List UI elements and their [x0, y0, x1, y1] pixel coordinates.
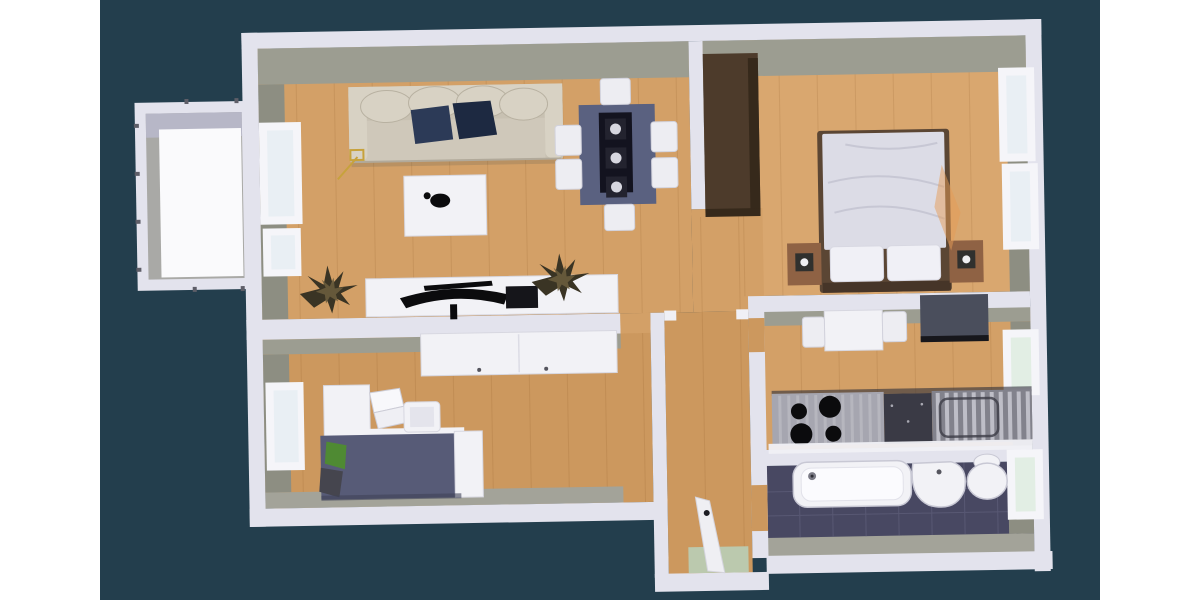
sofa-pillow-navy-2 — [453, 101, 498, 140]
window-glass-bedroom-2 — [1010, 171, 1031, 241]
dining-chair[interactable] — [556, 159, 583, 189]
wall-hall-south — [655, 572, 769, 592]
floorplan-canvas — [0, 0, 1200, 600]
doorway-living-hall — [620, 313, 650, 334]
sofa-seat — [365, 118, 546, 161]
closet-seam — [519, 334, 520, 372]
sofa-back-cushion — [360, 90, 413, 123]
bed-pillow-left — [830, 246, 884, 282]
kitchen-table[interactable] — [824, 310, 883, 351]
sofa-back-cushion — [499, 88, 548, 121]
doorway-bathroom — [751, 485, 768, 531]
dining-chair[interactable] — [600, 78, 630, 105]
balcony-post — [234, 98, 238, 103]
dining-chair[interactable] — [555, 125, 582, 155]
balcony-post — [184, 99, 188, 104]
window-glass-living-2 — [271, 235, 296, 269]
left-margin — [0, 0, 100, 600]
balcony-floor — [159, 128, 244, 277]
desk-chair-seat — [410, 407, 434, 427]
window-glass-office — [274, 390, 299, 462]
window-glass-kitchen — [1011, 337, 1032, 387]
counter-mid — [884, 393, 933, 444]
balcony-post — [135, 172, 140, 176]
toilet[interactable] — [967, 463, 1008, 500]
balcony-post — [134, 124, 139, 128]
wall-divider-living-bedroom — [688, 41, 705, 209]
dining-chair[interactable] — [652, 157, 679, 187]
kitchen-chair[interactable] — [882, 311, 907, 341]
window-glass-bedroom-1 — [1006, 75, 1027, 153]
apartment-plan-layer — [132, 19, 1053, 600]
office-bed-footboard — [454, 431, 483, 497]
balcony-post — [136, 220, 141, 224]
fridge[interactable] — [920, 294, 989, 341]
window-glass-living-1 — [267, 130, 294, 216]
dining-chair[interactable] — [651, 121, 678, 151]
doorway-kitchen — [748, 318, 765, 352]
kitchen-chair[interactable] — [802, 317, 825, 347]
balcony-post — [241, 286, 245, 291]
dining-chair[interactable] — [604, 204, 634, 231]
door-jamb — [736, 309, 748, 319]
window-glass-bathroom — [1015, 457, 1036, 511]
media-box[interactable] — [506, 286, 538, 309]
wardrobe-bottom — [705, 208, 760, 217]
balcony-post — [136, 268, 141, 272]
balcony-post — [193, 287, 197, 292]
door-jamb — [664, 310, 676, 320]
floorplan-render — [0, 0, 1200, 600]
tv-foot — [450, 304, 457, 319]
right-margin — [1100, 0, 1200, 600]
fridge-lip — [921, 335, 989, 342]
bathtub-inner — [801, 467, 904, 502]
sofa-pillow-navy-1 — [411, 105, 454, 144]
bed-pillow-right — [887, 245, 941, 281]
